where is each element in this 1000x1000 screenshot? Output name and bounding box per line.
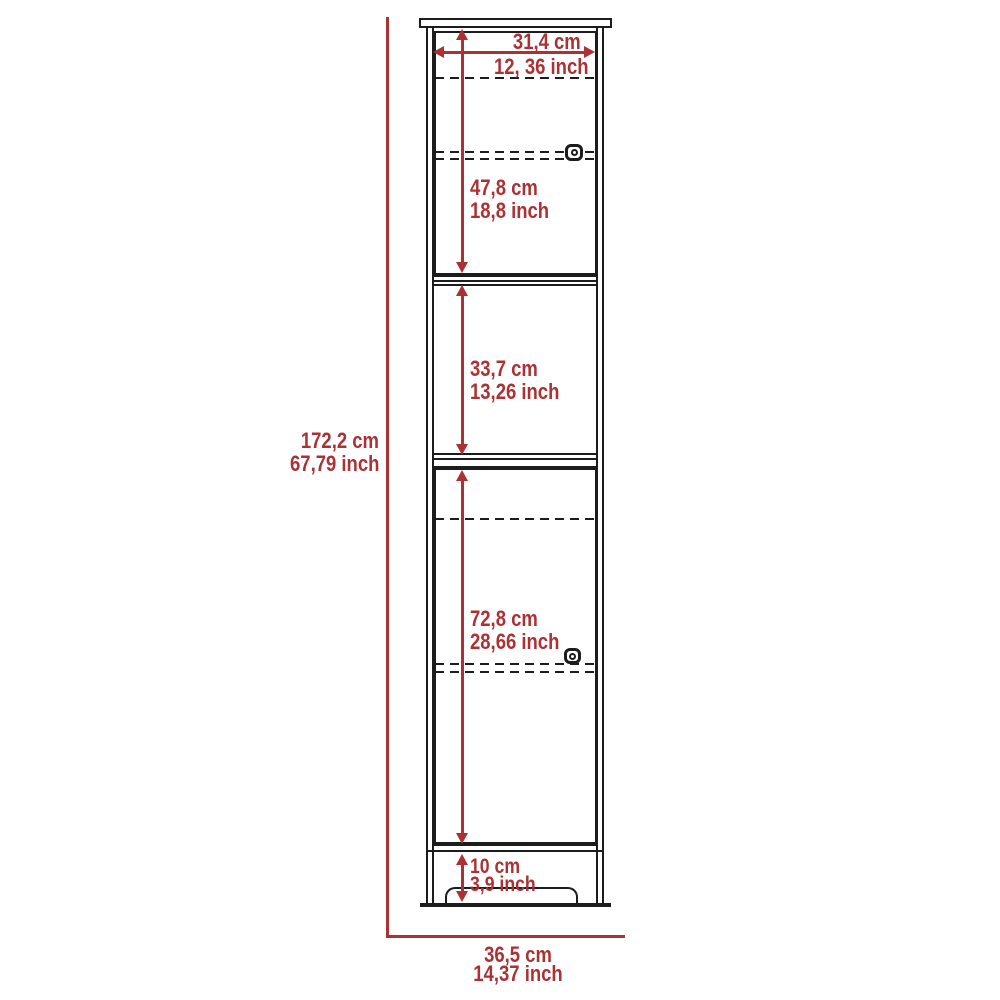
inner-width-label-cm: 31,4 cm [513, 31, 581, 53]
lower-door-knob-inner [569, 653, 576, 660]
arrow-line [461, 478, 464, 836]
inner-width-label-inch: 12, 36 inch [494, 56, 589, 78]
arrow-line [461, 293, 464, 447]
upper-door-knob-icon [565, 144, 583, 161]
overall-height-dim-line [386, 17, 389, 938]
upper-door-knob-inner [571, 149, 578, 156]
base-label-inch: 3,9 inch [470, 874, 536, 895]
overall-height-label-inch: 67,79 inch [290, 453, 379, 475]
cabinet-top-cap [419, 18, 612, 28]
middle-section-label-inch: 13,26 inch [470, 381, 559, 403]
arrow-head-down-icon [456, 833, 468, 844]
overall-width-dim-line [386, 935, 625, 938]
lower-door-knob-icon [564, 648, 581, 664]
base-height-arrow [456, 854, 469, 902]
middle-section-height-arrow [456, 285, 469, 455]
upper-door-height-arrow [456, 29, 469, 273]
upper-door-label-inch: 18,8 inch [470, 200, 549, 222]
arrow-line [461, 862, 464, 894]
lower-door-label-inch: 28,66 inch [470, 631, 559, 653]
upper-door-label-cm: 47,8 cm [470, 177, 538, 199]
base-top-line [427, 850, 603, 852]
arrow-line [461, 37, 464, 265]
lower-door-label-cm: 72,8 cm [470, 608, 538, 630]
cabinet-right-wall [596, 27, 604, 906]
arrow-head-down-icon [456, 262, 468, 273]
cabinet-left-wall [426, 27, 434, 906]
overall-height-label-cm: 172,2 cm [301, 430, 379, 452]
arrow-head-down-icon [456, 444, 468, 455]
cabinet-bottom-line [420, 903, 611, 907]
middle-section-label-cm: 33,7 cm [470, 358, 538, 380]
cabinet-dimension-diagram: 31,4 cm 12, 36 inch 47,8 cm 18,8 inch 33… [0, 0, 1000, 1000]
lower-door-height-arrow [456, 470, 469, 844]
overall-width-label-inch: 14,37 inch [434, 963, 602, 985]
arrow-head-down-icon [456, 891, 468, 902]
shelf-divider-line-4 [433, 458, 597, 460]
shelf-divider-line-1 [433, 280, 597, 282]
